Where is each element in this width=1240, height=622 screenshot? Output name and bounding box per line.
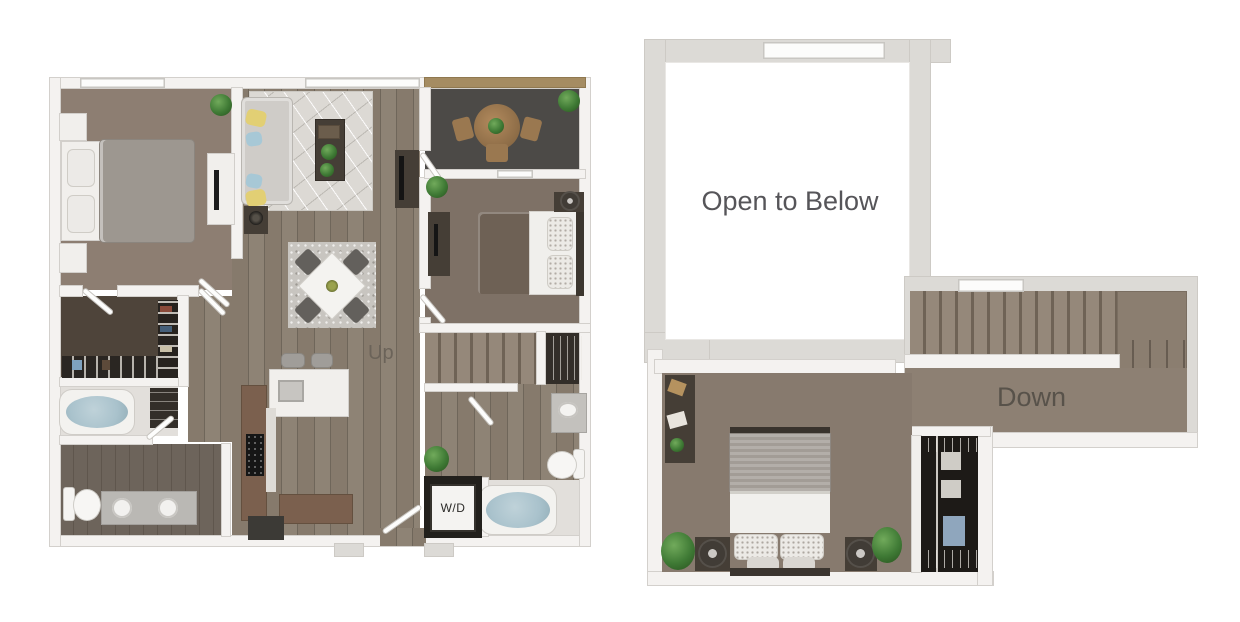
plant [872, 527, 902, 563]
plant [426, 176, 448, 198]
outer-wall-bottom [50, 536, 590, 546]
window-stairs [958, 279, 1024, 292]
closet-sliding-door [912, 436, 921, 572]
stair-railing-first-floor [425, 384, 517, 391]
landing-wall-bottom [985, 433, 1197, 447]
closet-shirt [943, 516, 965, 546]
coffee-table-plant [320, 163, 334, 177]
floor-plan-canvas: Up W/D Open to Below Down [0, 0, 1240, 622]
speaker [562, 193, 578, 209]
bed-2-headboard [576, 210, 584, 296]
wall-bedroom1-closet-a [60, 286, 82, 296]
nightstand [60, 244, 86, 272]
nightstand [60, 114, 86, 140]
window-open-area [763, 42, 885, 59]
closet-clothes [72, 360, 82, 370]
loft-bed-pillow [735, 535, 777, 559]
bed-1-pillow [68, 196, 94, 232]
loft-bed-headboard [730, 568, 830, 576]
bedroom-wall-right [978, 427, 992, 585]
bed-2-duvet [478, 212, 530, 294]
bed-1-duvet [100, 140, 194, 242]
tv-bedroom-2 [434, 224, 438, 256]
plant [661, 532, 695, 570]
tv-console-bedroom-1 [208, 154, 234, 224]
closet-wall-top [908, 427, 990, 436]
window-living-room [305, 78, 420, 88]
refrigerator [248, 516, 284, 540]
sofa-pillow-blue [245, 173, 263, 190]
entry-stoop-left [335, 544, 363, 556]
tub-water [66, 396, 128, 428]
bath-2-tub-water [486, 492, 550, 528]
tv-bedroom-1 [214, 170, 219, 210]
closet-shelf-top [921, 438, 978, 452]
up-label: Up [368, 342, 394, 365]
bath-2-sink [558, 402, 578, 418]
bedroom-wall-left [648, 350, 662, 585]
window-bedroom-1 [80, 78, 165, 88]
coffee-table-tray [319, 126, 339, 138]
toilet-bowl [74, 490, 100, 520]
wall-bedroom2-stairs [420, 324, 590, 332]
down-label: Down [997, 382, 1066, 413]
open-to-below-label: Open to Below [695, 186, 885, 217]
patio-chair [486, 144, 508, 162]
closet-clothes [160, 326, 172, 332]
kitchen-counter-bottom [280, 495, 352, 523]
closet-shelf-bottom [921, 550, 978, 568]
speaker [848, 541, 873, 566]
table-lamp [249, 211, 263, 225]
balcony-railing [425, 78, 585, 87]
first-floor-plan: Up W/D [50, 78, 590, 546]
bed-2-pillow [548, 256, 572, 288]
desk-plant [670, 438, 684, 452]
toilet-bowl [548, 452, 576, 478]
bed-2-pillow [548, 218, 572, 250]
staircase-down [910, 291, 1117, 357]
hallway-floor [188, 296, 232, 442]
wall-living-balcony [420, 88, 430, 150]
outer-wall-left [50, 78, 60, 546]
dining-centerpiece [326, 280, 338, 292]
closet-divider [936, 436, 938, 572]
vanity-sink [112, 498, 132, 518]
open-wing-wall-left [645, 40, 665, 362]
staircase-up [425, 332, 537, 384]
wd-label: W/D [441, 501, 466, 515]
washer-dryer: W/D [432, 486, 474, 530]
stair-railing-second-floor [905, 355, 1119, 368]
speaker [700, 541, 725, 566]
closet-clothes [160, 306, 172, 312]
loft-bed-footboard [730, 427, 830, 434]
bedroom-wall-top [655, 360, 895, 373]
cooktop [246, 434, 264, 476]
tv-stand-bedroom-2 [428, 212, 450, 276]
wall-primarybath-kitchen [222, 444, 230, 536]
entry-stoop-right [425, 544, 453, 556]
kitchen-appliance-strip [266, 408, 276, 492]
toilet-tank [64, 488, 74, 520]
closet-bin [941, 452, 961, 470]
closet-bin [941, 480, 961, 498]
plant [558, 90, 580, 112]
closet-clothes [102, 360, 110, 370]
bar-stool [312, 354, 332, 367]
closet-clothes [160, 346, 172, 352]
loft-bed-pillow [781, 535, 823, 559]
window-bedroom-2 [497, 170, 533, 178]
plant [424, 446, 449, 472]
bar-stool [282, 354, 304, 367]
wall-bath1-primarybath [60, 436, 152, 444]
tv-living [399, 156, 404, 200]
wall-stairs-linen [537, 332, 545, 384]
wall-bedroom1-closet-b [118, 286, 198, 296]
bed-1-pillow [68, 150, 94, 186]
loft-bed-sheets [730, 491, 830, 533]
linen-closet-rod [547, 336, 583, 380]
second-floor-plan: Open to Below Down [645, 40, 1197, 585]
coffee-table-plant [321, 144, 337, 160]
patio-table-plant [488, 118, 504, 134]
island-sink [278, 380, 304, 402]
plant [210, 94, 232, 116]
loft-bed-blanket [730, 434, 830, 491]
wall-closet-bath1 [60, 378, 178, 386]
sofa-pillow-blue [245, 131, 263, 147]
wall-closet-hall [178, 296, 188, 386]
vanity-sink [158, 498, 178, 518]
